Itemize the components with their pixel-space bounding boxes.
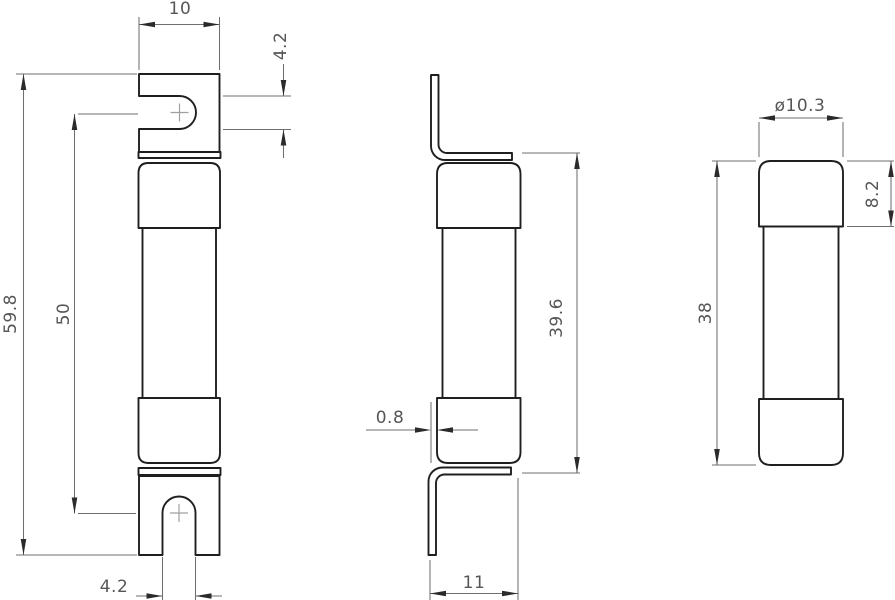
arrow-left-icon [437, 427, 453, 433]
dim-slot-centers: 50 [54, 114, 138, 514]
arrow-up-icon [281, 130, 287, 146]
side-view: 0.8 39.6 11 [366, 75, 580, 600]
bottom-blade-side-outline [429, 468, 512, 556]
dim-blade-thickness: 0.8 [366, 402, 478, 463]
front-view: 10 4.2 59.8 50 [1, 0, 291, 600]
bottom-cap-outline [139, 398, 221, 463]
bottom-end-plate [139, 468, 221, 475]
dim-blade-depth: 11 [430, 478, 518, 600]
top-end-plate [139, 152, 221, 158]
arrow-up-icon [72, 114, 78, 130]
arrow-up-icon [714, 161, 720, 177]
arrow-right-icon [827, 115, 843, 121]
dim-slot-width: 4.2 [100, 557, 222, 600]
arrow-up-icon [574, 153, 580, 169]
top-cap-side-outline [437, 163, 521, 228]
arrow-right-icon [204, 22, 220, 28]
technical-drawing-canvas: 10 4.2 59.8 50 [0, 0, 895, 600]
dim-overall-length-label: 59.8 [1, 294, 21, 334]
arrow-up-icon [21, 74, 27, 90]
arrow-right-icon [502, 591, 518, 597]
top-cap-outline [139, 163, 221, 228]
arrow-down-icon [714, 449, 720, 465]
fuse-drawing-svg: 10 4.2 59.8 50 [0, 0, 895, 600]
dim-cap-length: 8.2 [847, 161, 894, 227]
dim-body-length: 38 [696, 161, 756, 465]
arrow-down-icon [888, 211, 894, 227]
cartridge-top-cap-outline [759, 161, 843, 227]
dim-diameter-label: ø10.3 [775, 96, 826, 116]
dim-slot-centers-label: 50 [54, 303, 74, 326]
arrow-down-icon [281, 80, 287, 96]
arrow-down-icon [72, 498, 78, 514]
dim-length-with-blades: 39.6 [522, 153, 580, 473]
dim-blade-thickness-label: 0.8 [376, 408, 405, 428]
body-tube-outline [143, 228, 217, 398]
cartridge-tube-outline [764, 227, 839, 400]
arrow-left-icon [430, 591, 446, 597]
arrow-down-icon [574, 457, 580, 473]
arrow-left-icon [139, 22, 155, 28]
dim-cap-length-label: 8.2 [863, 180, 883, 209]
dim-slot-width-label: 4.2 [100, 577, 129, 597]
arrow-left-icon [759, 115, 775, 121]
cartridge-bottom-cap-outline [759, 399, 843, 465]
dim-tab-width: 10 [139, 0, 220, 70]
top-slot-center-mark [171, 104, 189, 122]
arrow-right-icon [147, 593, 163, 599]
dim-tab-width-label: 10 [169, 0, 192, 19]
dim-body-length-label: 38 [696, 302, 716, 325]
arrow-right-icon [415, 427, 431, 433]
dim-diameter: ø10.3 [759, 96, 843, 157]
top-blade-side-outline [431, 75, 512, 160]
bottom-slot-center-mark [170, 504, 188, 522]
dim-slot-offset: 4.2 [223, 32, 291, 158]
arrow-up-icon [888, 161, 894, 177]
dim-blade-depth-label: 11 [463, 573, 486, 593]
cartridge-view: ø10.3 8.2 38 [696, 96, 894, 465]
arrow-down-icon [21, 539, 27, 555]
arrow-left-icon [196, 593, 212, 599]
body-tube-side-outline [443, 228, 516, 398]
dim-length-with-blades-label: 39.6 [547, 298, 567, 338]
dim-slot-offset-label: 4.2 [271, 32, 291, 61]
